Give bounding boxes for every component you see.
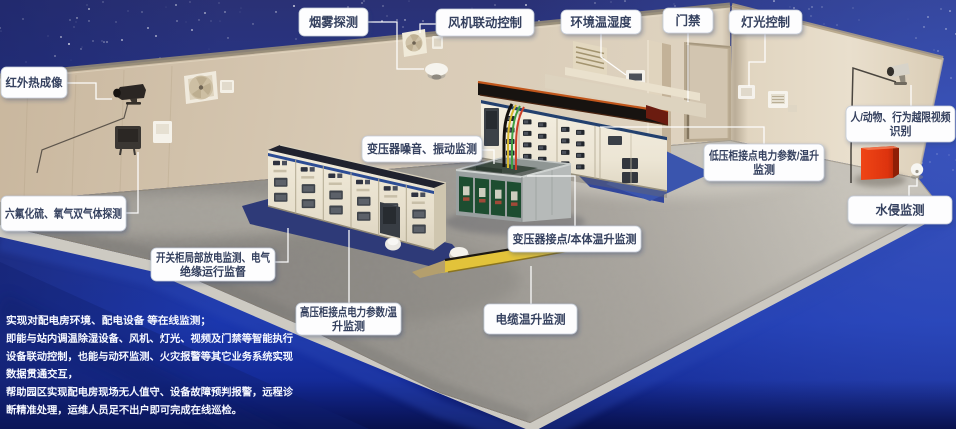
svg-text:环境温湿度: 环境温湿度: [571, 14, 633, 29]
svg-text:实现对配电房环境、配电设备 等在线监测；: 实现对配电房环境、配电设备 等在线监测；: [6, 314, 211, 327]
svg-text:设备联动控制，也能与动环监测、火灾报警等其它业务系统实现: 设备联动控制，也能与动环监测、火灾报警等其它业务系统实现: [6, 350, 294, 363]
svg-text:灯光控制: 灯光控制: [741, 14, 790, 29]
svg-text:水侵监测: 水侵监测: [876, 202, 925, 217]
svg-text:断精准处理，运维人员足不出户即可完成在线巡检。: 断精准处理，运维人员足不出户即可完成在线巡检。: [6, 404, 242, 417]
svg-text:变压器噪音、振动监测: 变压器噪音、振动监测: [367, 142, 477, 156]
svg-text:门禁: 门禁: [676, 13, 702, 28]
svg-text:电缆温升监测: 电缆温升监测: [496, 311, 566, 326]
svg-text:六氟化硫、氧气双气体探测: 六氟化硫、氧气双气体探测: [5, 207, 122, 221]
svg-text:低压柜接点电力参数/温升: 低压柜接点电力参数/温升: [708, 149, 819, 163]
svg-text:烟雾探测: 烟雾探测: [309, 14, 358, 29]
svg-text:监测: 监测: [753, 163, 775, 177]
svg-text:红外热成像: 红外热成像: [6, 76, 64, 90]
svg-text:绝缘运行监督: 绝缘运行监督: [180, 265, 247, 279]
svg-text:变压器接点/本体温升监测: 变压器接点/本体温升监测: [513, 232, 637, 246]
svg-text:风机联动控制: 风机联动控制: [448, 15, 522, 30]
svg-text:识别: 识别: [890, 124, 912, 138]
svg-text:帮助园区实现配电房现场无人值守、设备故障预判报警，远程诊: 帮助园区实现配电房现场无人值守、设备故障预判报警，远程诊: [6, 386, 294, 399]
svg-text:开关柜局部放电监测、电气: 开关柜局部放电监测、电气: [156, 251, 271, 265]
svg-text:高压柜接点电力参数/温: 高压柜接点电力参数/温: [300, 305, 398, 319]
svg-text:升监测: 升监测: [332, 319, 365, 333]
svg-text:即能与站内调温除湿设备、风机、灯光、视频及门禁等智能执行: 即能与站内调温除湿设备、风机、灯光、视频及门禁等智能执行: [6, 332, 294, 345]
svg-text:数据贯通交互，: 数据贯通交互，: [5, 368, 78, 381]
svg-text:人/动物、行为越限视频: 人/动物、行为越限视频: [851, 110, 952, 124]
